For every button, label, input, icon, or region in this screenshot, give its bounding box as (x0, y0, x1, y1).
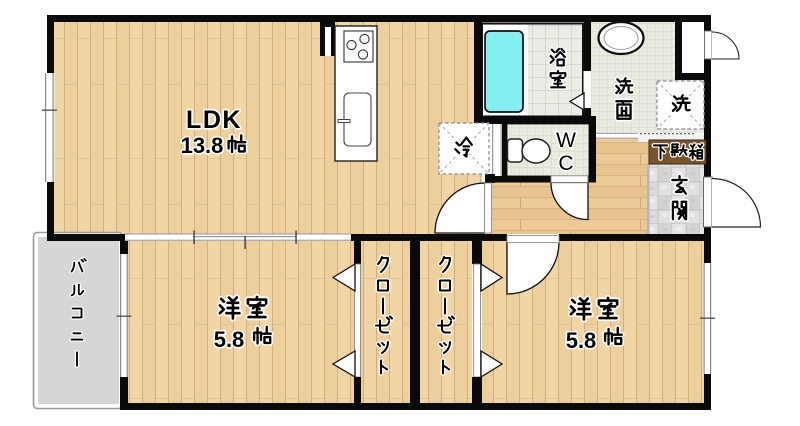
svg-text:LDK: LDK (186, 106, 242, 134)
svg-text:C: C (558, 152, 573, 175)
svg-text:W: W (556, 129, 576, 152)
svg-text:5.8: 5.8 (214, 327, 245, 352)
svg-text:13.8: 13.8 (181, 133, 224, 158)
svg-text:5.8: 5.8 (566, 328, 597, 353)
